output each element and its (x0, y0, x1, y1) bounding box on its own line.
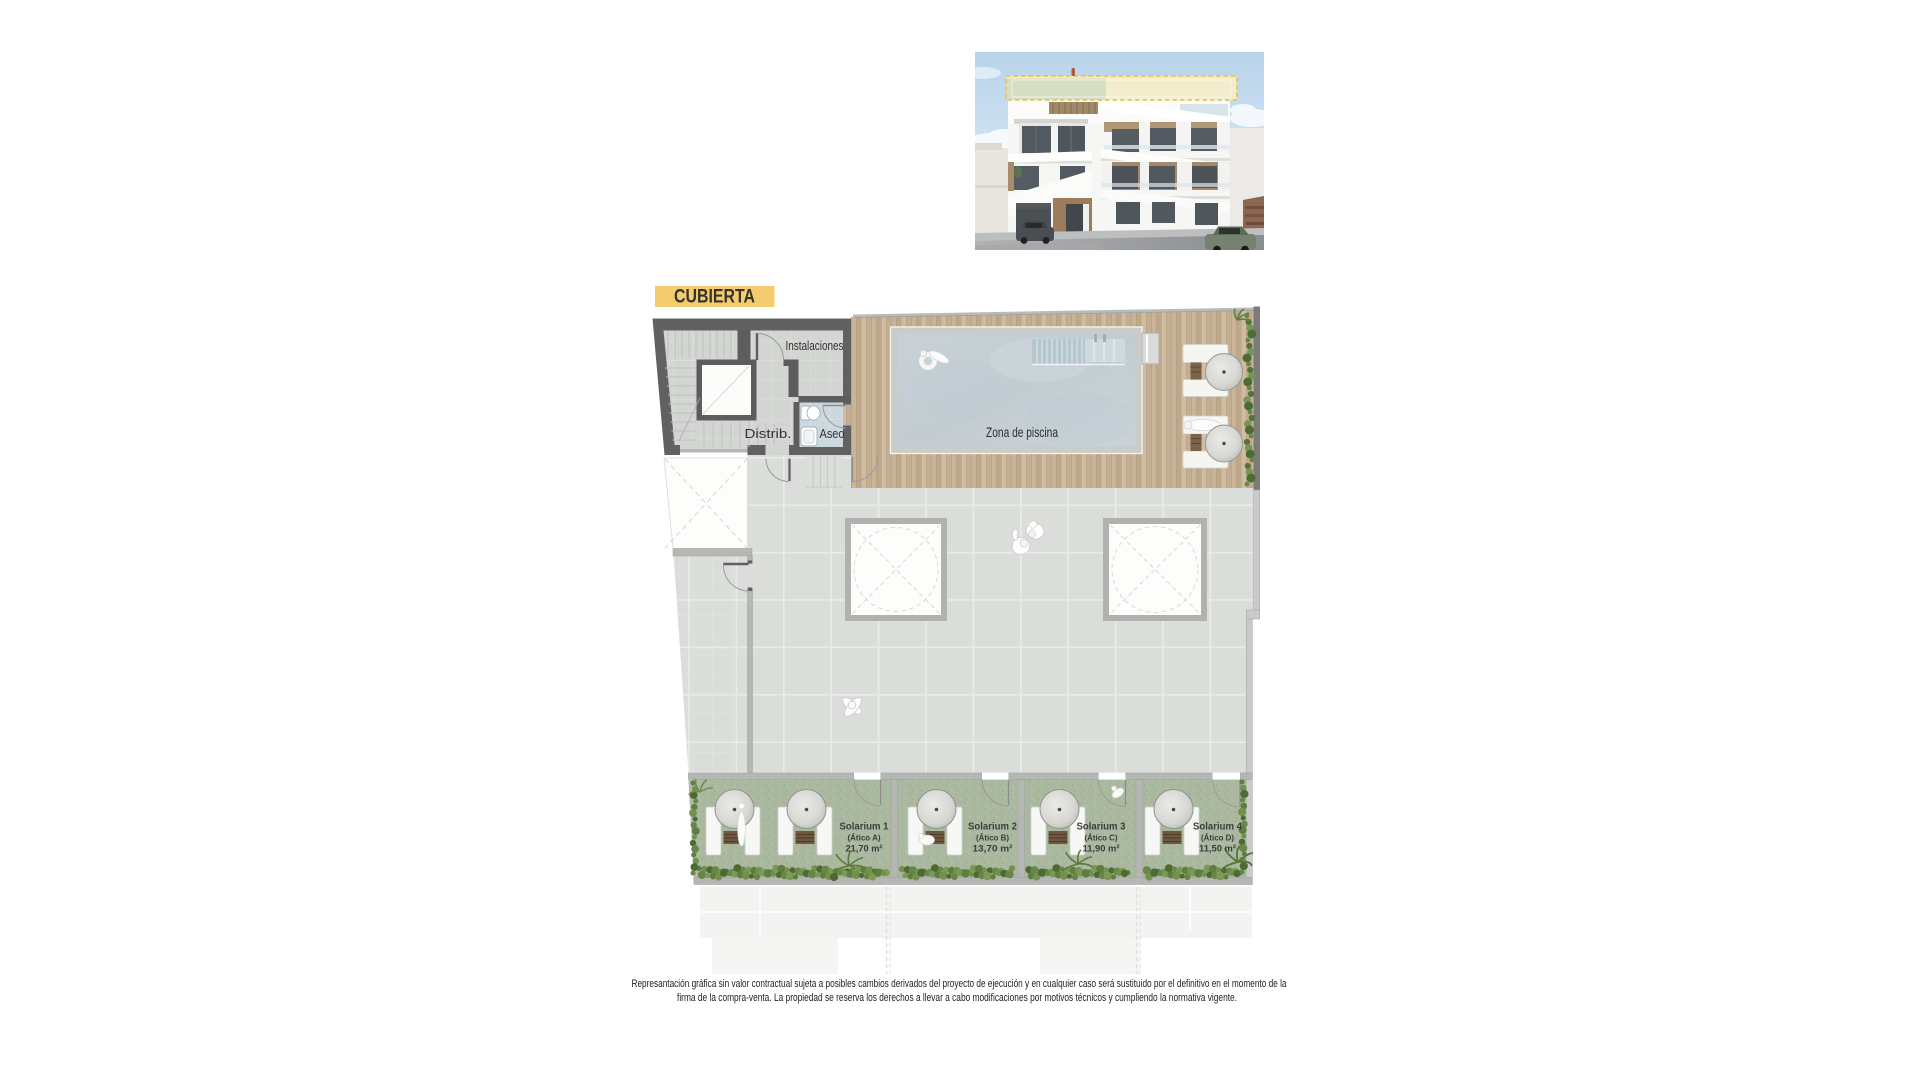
svg-text:(Ático D): (Ático D) (1201, 834, 1234, 843)
svg-text:Instalaciones: Instalaciones (786, 339, 844, 353)
svg-text:13,70 m²: 13,70 m² (973, 844, 1013, 855)
svg-text:(Ático C): (Ático C) (1085, 834, 1118, 843)
svg-text:firma de la compra-venta. La p: firma de la compra-venta. La propiedad s… (677, 992, 1237, 1004)
svg-text:Represantación gráfica sin val: Represantación gráfica sin valor contrac… (632, 978, 1288, 990)
svg-text:11,50 m²: 11,50 m² (1199, 844, 1236, 855)
svg-text:Aseo: Aseo (820, 427, 845, 441)
svg-text:Zona de piscina: Zona de piscina (986, 425, 1058, 440)
svg-text:(Ático B): (Ático B) (976, 834, 1009, 843)
svg-text:(Ático A): (Ático A) (848, 834, 881, 843)
svg-text:Solarium 3: Solarium 3 (1077, 821, 1126, 833)
svg-text:Solarium 2: Solarium 2 (968, 821, 1017, 833)
svg-text:CUBIERTA: CUBIERTA (674, 286, 755, 308)
svg-text:Solarium 1: Solarium 1 (840, 821, 889, 833)
svg-text:21,70 m²: 21,70 m² (846, 844, 883, 855)
svg-text:Distrib.: Distrib. (745, 426, 792, 441)
svg-text:Solarium 4: Solarium 4 (1193, 821, 1242, 833)
svg-text:11,90 m²: 11,90 m² (1083, 844, 1120, 855)
